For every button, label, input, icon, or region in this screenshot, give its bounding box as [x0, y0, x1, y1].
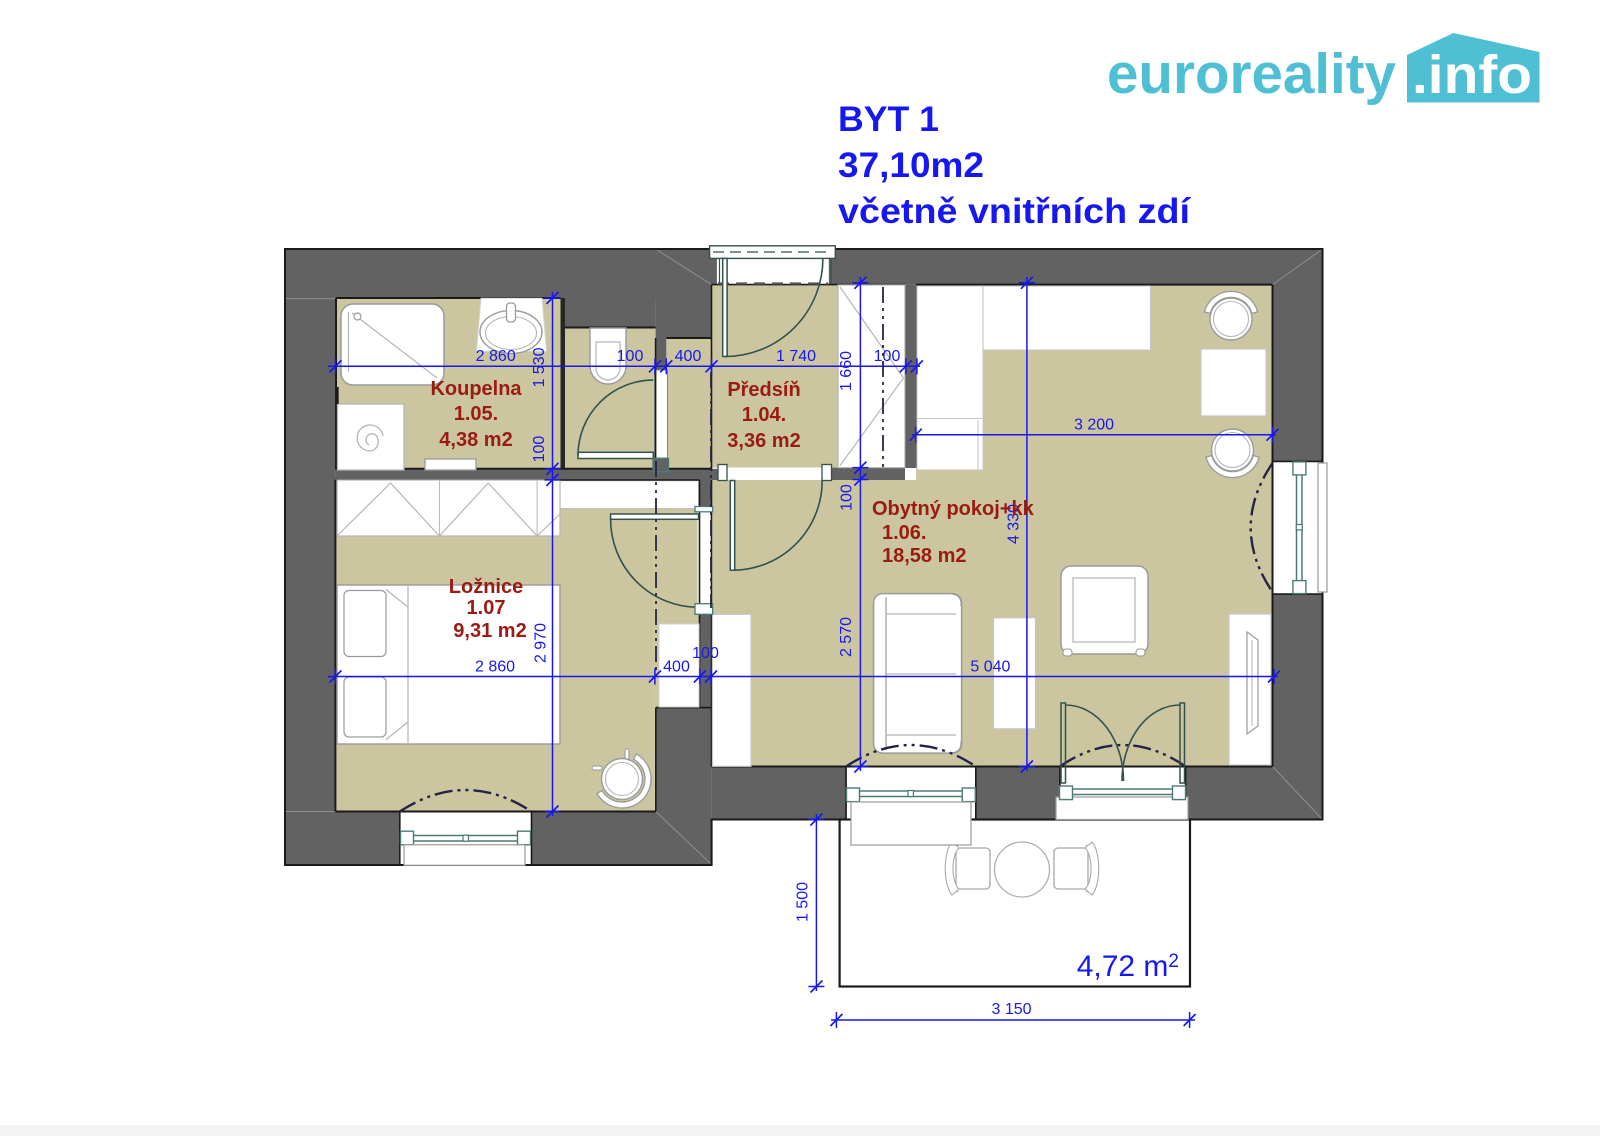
svg-text:1 660: 1 660 [838, 351, 855, 391]
svg-text:2 970: 2 970 [533, 623, 550, 663]
svg-text:400: 400 [675, 348, 702, 365]
svg-text:4,38 m2: 4,38 m2 [439, 429, 512, 451]
svg-text:4,72 m2: 4,72 m2 [1077, 950, 1179, 983]
svg-text:1.05.: 1.05. [454, 403, 498, 425]
svg-text:1 530: 1 530 [531, 347, 548, 387]
svg-text:1.04.: 1.04. [742, 404, 786, 426]
svg-text:euroreality: euroreality [1107, 42, 1396, 106]
svg-text:100: 100 [839, 484, 856, 511]
svg-text:1.07: 1.07 [467, 597, 506, 619]
svg-text:18,58 m2: 18,58 m2 [882, 545, 967, 567]
svg-text:3 150: 3 150 [991, 1001, 1031, 1018]
svg-text:37,10m2: 37,10m2 [838, 146, 984, 185]
svg-text:BYT 1: BYT 1 [838, 100, 939, 139]
svg-text:2 570: 2 570 [838, 617, 855, 657]
svg-text:1 500: 1 500 [795, 882, 812, 922]
svg-text:1 740: 1 740 [776, 348, 816, 365]
svg-text:2 860: 2 860 [475, 659, 515, 676]
svg-text:5 040: 5 040 [970, 659, 1010, 676]
svg-text:100: 100 [617, 348, 644, 365]
svg-text:Předsíň: Předsíň [727, 379, 800, 401]
svg-text:3 200: 3 200 [1074, 417, 1114, 434]
svg-text:Ložnice: Ložnice [449, 576, 523, 598]
svg-text:.info: .info [1412, 45, 1532, 105]
svg-text:Obytný pokoj+kk: Obytný pokoj+kk [872, 498, 1035, 520]
svg-text:9,31 m2: 9,31 m2 [453, 620, 526, 642]
svg-text:3,36 m2: 3,36 m2 [727, 430, 800, 452]
svg-text:1.06.: 1.06. [882, 522, 926, 544]
svg-text:400: 400 [663, 659, 690, 676]
svg-text:včetně vnitřních zdí: včetně vnitřních zdí [838, 192, 1191, 231]
svg-text:Koupelna: Koupelna [430, 378, 522, 400]
svg-text:100: 100 [531, 436, 548, 463]
svg-text:100: 100 [874, 348, 901, 365]
svg-text:2 860: 2 860 [476, 348, 516, 365]
svg-text:100: 100 [692, 645, 719, 662]
